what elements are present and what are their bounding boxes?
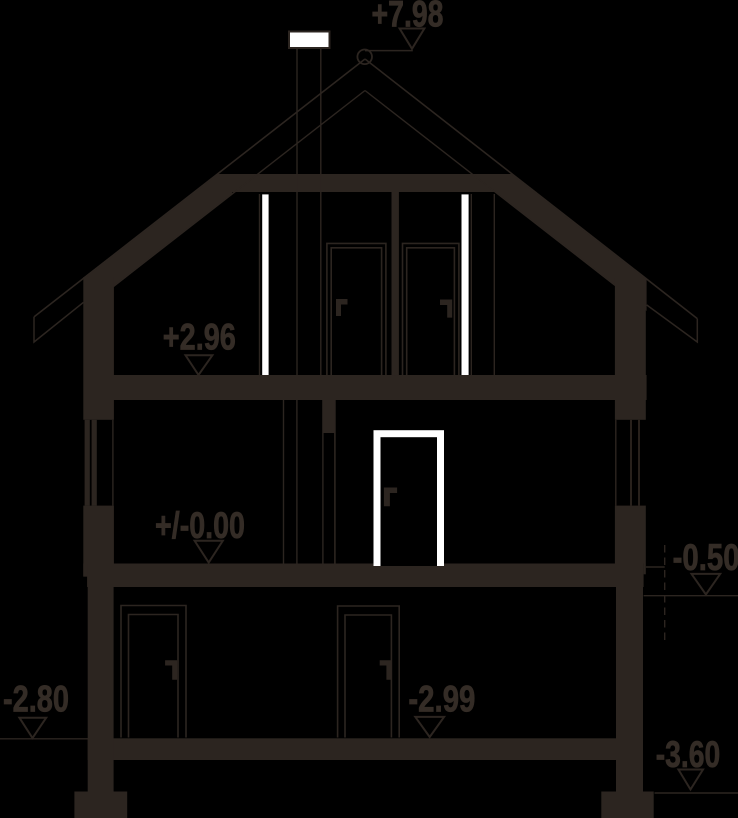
svg-text:-2.99: -2.99 xyxy=(408,678,475,720)
svg-text:-2.80: -2.80 xyxy=(3,678,69,720)
svg-text:-0.50: -0.50 xyxy=(673,536,738,578)
svg-text:+/-0.00: +/-0.00 xyxy=(155,504,245,546)
svg-text:+2.96: +2.96 xyxy=(163,316,236,358)
